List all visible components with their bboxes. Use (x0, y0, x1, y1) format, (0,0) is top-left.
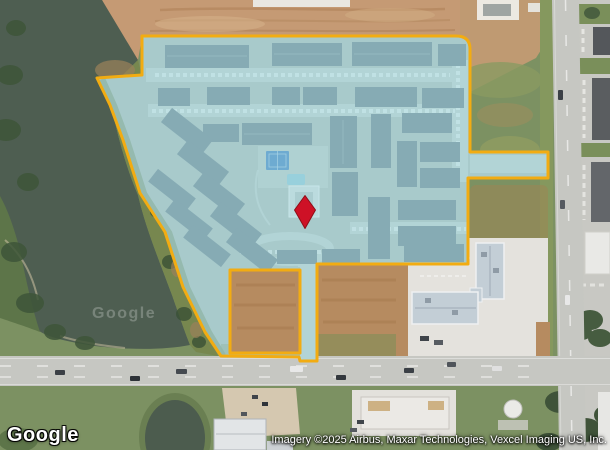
satellite-map-canvas[interactable] (0, 0, 610, 450)
map-viewport[interactable]: Google Google Imagery ©2025 Airbus, Maxa… (0, 0, 610, 450)
google-logo[interactable]: Google (7, 424, 79, 447)
building-top-edge (253, 0, 350, 7)
round-tank (504, 400, 522, 418)
imagery-attribution: Imagery ©2025 Airbus, Maxar Technologies… (271, 434, 607, 446)
